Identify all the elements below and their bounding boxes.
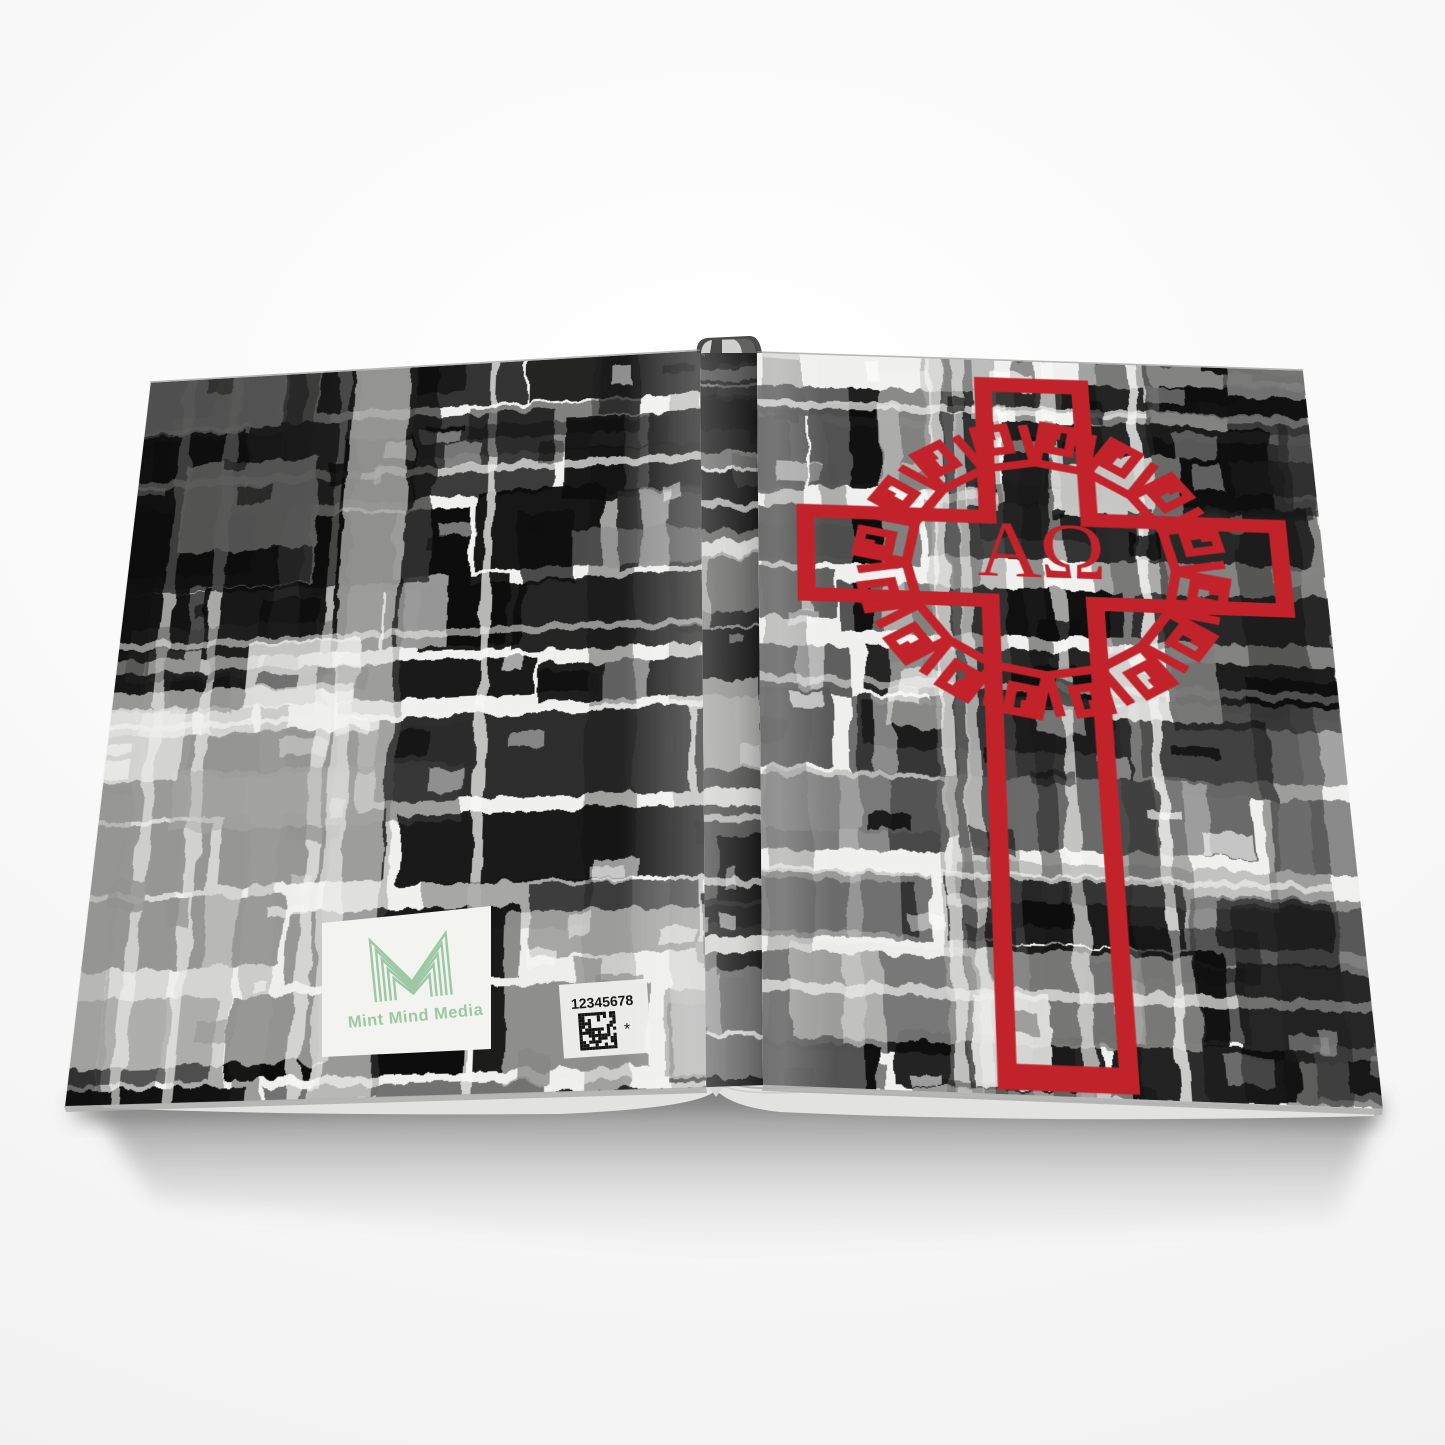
svg-text:*: * — [624, 1021, 631, 1038]
